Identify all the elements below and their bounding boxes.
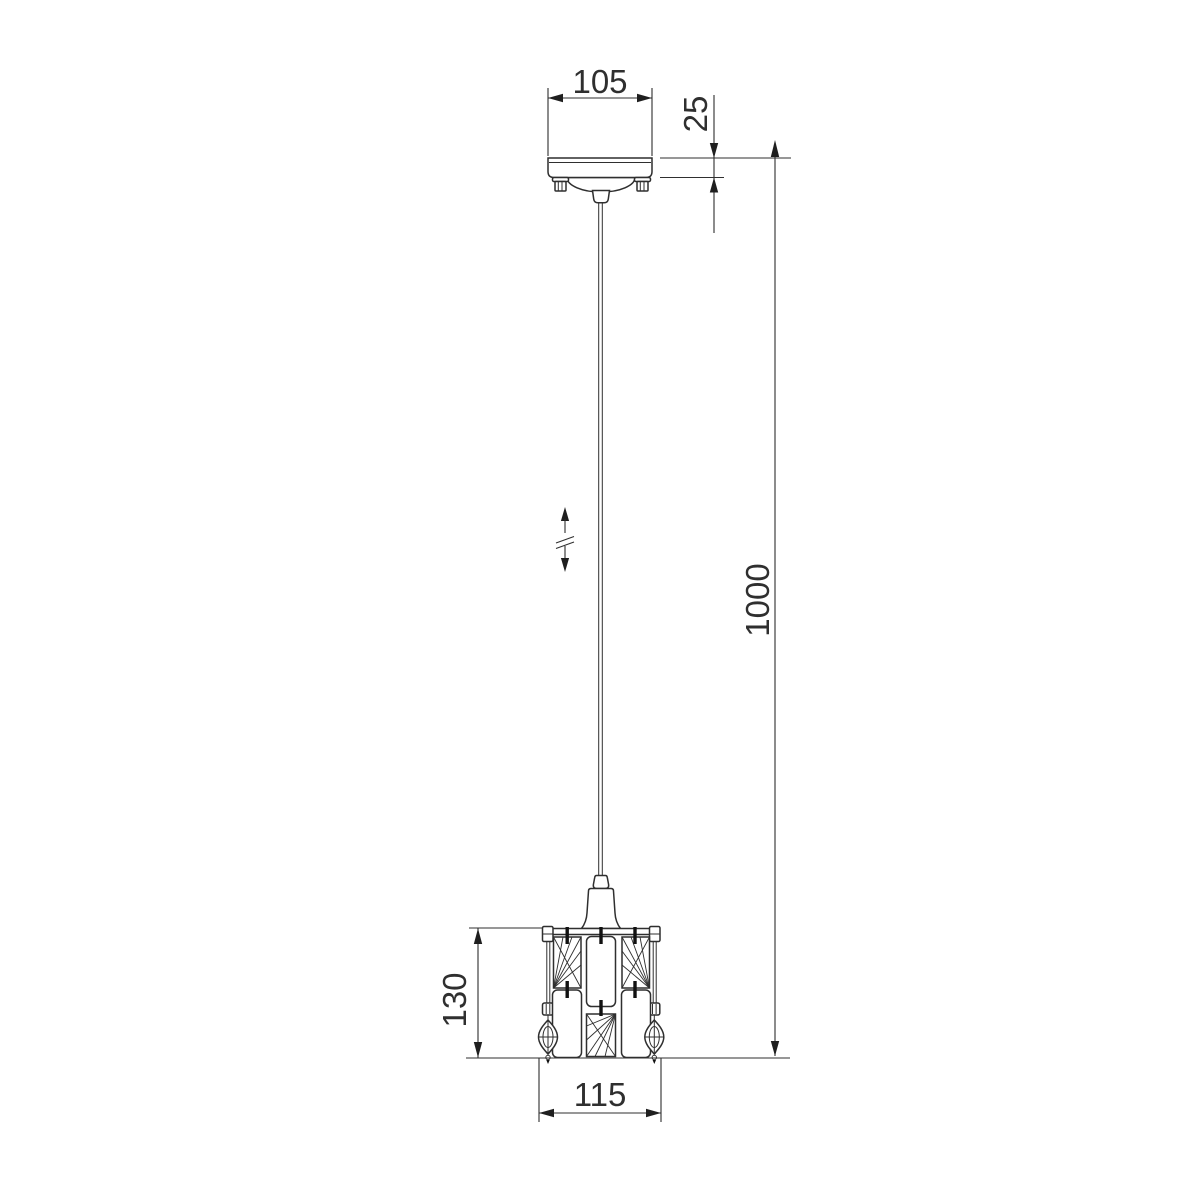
crystal-prism-upper-left <box>554 937 582 988</box>
arrowhead-icon <box>474 1042 482 1058</box>
arrowhead-icon <box>771 140 779 157</box>
dim-label-canopy-width: 105 <box>572 63 627 100</box>
screw-body <box>637 182 648 192</box>
screw-body <box>555 182 566 192</box>
arrowhead-down-icon <box>561 558 569 572</box>
hanger-pin <box>566 981 569 998</box>
glass-panel-center-upper <box>587 937 616 1007</box>
drop-tip <box>653 1060 656 1064</box>
shade-cord-grip <box>593 876 608 889</box>
ceiling-canopy <box>548 158 652 203</box>
hanger-pin <box>633 927 636 944</box>
arrowhead-icon <box>548 94 563 102</box>
hanger-pin <box>599 1000 602 1016</box>
break-mark <box>556 537 574 544</box>
hanger-pin <box>566 927 569 944</box>
arrowhead-icon <box>710 143 718 158</box>
hanger-pin <box>633 981 636 998</box>
dimension-suspension-length: 1000 <box>739 140 779 1056</box>
drop-tip <box>546 1060 549 1064</box>
socket-cup <box>582 889 621 929</box>
crystal-prism-upper-right <box>622 937 650 988</box>
pendant-lamp-dimension-drawing: 105 25 1000 130 115 <box>0 0 1200 1200</box>
dim-label-shade-width: 115 <box>574 1076 627 1113</box>
glass-panel-right-lower <box>622 990 651 1058</box>
arrowhead-icon <box>637 94 652 102</box>
crystal-prism-lower-center <box>587 1014 616 1057</box>
canopy-cord-grip <box>593 191 610 203</box>
arrowhead-icon <box>474 929 482 945</box>
mounting-screw-right <box>635 178 651 192</box>
arrowhead-icon <box>771 1041 779 1056</box>
glass-panel-left-lower <box>553 990 582 1058</box>
dim-label-suspension-length: 1000 <box>739 563 776 636</box>
technical-drawing-canvas: 105 25 1000 130 115 <box>0 0 1200 1200</box>
arrowhead-icon <box>710 178 718 193</box>
dimension-canopy-width: 105 <box>548 63 652 156</box>
hanger-pin <box>599 927 602 944</box>
lamp-shade <box>539 876 664 1065</box>
dimension-canopy-height: 25 <box>660 95 791 233</box>
suspension-cord <box>599 203 603 876</box>
dim-label-canopy-height: 25 <box>677 96 714 133</box>
dim-label-shade-height: 130 <box>436 972 473 1027</box>
arrowhead-icon <box>646 1109 661 1117</box>
mounting-screw-left <box>553 178 569 192</box>
arrowhead-up-icon <box>561 507 569 521</box>
canopy-plate <box>548 158 652 178</box>
height-adjustment-icon <box>556 507 574 572</box>
arrowhead-icon <box>539 1109 554 1117</box>
dimension-shade-width: 115 <box>539 1058 661 1122</box>
